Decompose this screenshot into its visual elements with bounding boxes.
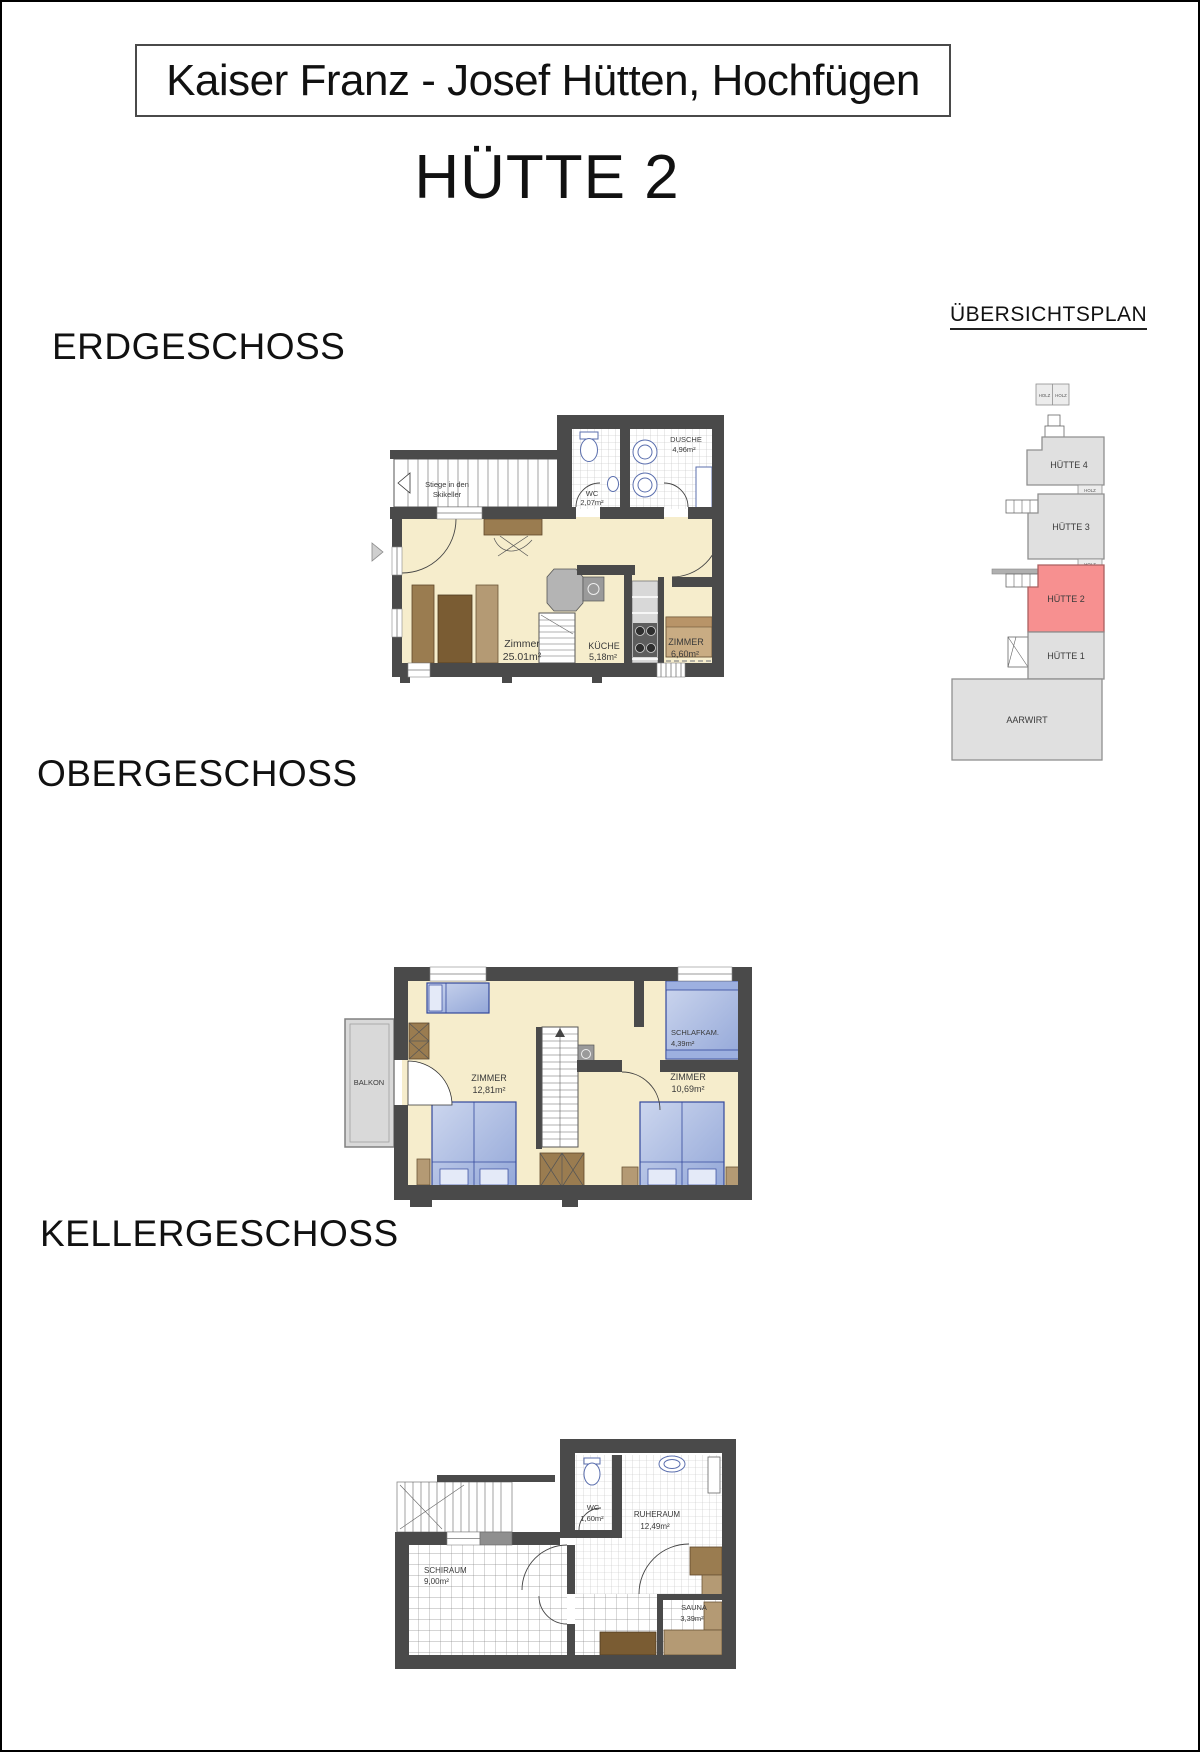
kg-bench [600, 1632, 656, 1655]
kg-toilet-icon [584, 1458, 600, 1485]
label-kg-wc-area: 1,60m² [580, 1514, 604, 1523]
label-dusche-area: 4,96m² [672, 445, 696, 454]
single-bed-topleft [427, 983, 489, 1013]
nightstand [417, 1159, 430, 1185]
kg-shower-icon [708, 1457, 720, 1493]
label-zimmer-area: 25.01m² [503, 651, 542, 663]
label-wc-area: 2,07m² [580, 498, 604, 507]
ruheraum-bench [702, 1575, 722, 1597]
building-aarwirt-label: AARWIRT [1006, 715, 1048, 725]
holz-top-boxes: HOLZ HOLZ [1036, 384, 1069, 405]
label-wc-name: WC [586, 489, 599, 498]
heading-kellergeschoss: KELLERGESCHOSS [40, 1213, 399, 1255]
uebersichtsplan-map: HOLZ HOLZ HÜTTE 4 HOLZ HÜTTE 3 HOLZ HÜTT… [942, 372, 1124, 772]
og-stairs [536, 1027, 578, 1149]
wc-sink-icon [608, 477, 619, 492]
wardrobe-left [409, 1023, 429, 1059]
wardrobe-bottom [540, 1153, 584, 1187]
label-zimmer-name: Zimmer [504, 638, 540, 650]
kg-sink-icon [659, 1456, 685, 1472]
building-huette3-label: HÜTTE 3 [1052, 522, 1090, 532]
building-huette4-label: HÜTTE 4 [1050, 460, 1088, 470]
nightstand [622, 1167, 638, 1187]
label-ruheraum-name: RUHERAUM [634, 1510, 681, 1519]
double-bed-right [640, 1102, 724, 1190]
kg-windows [447, 1532, 512, 1545]
hut-subtitle: HÜTTE 2 [197, 142, 897, 213]
label-sauna-area: 3,39m² [680, 1614, 704, 1623]
label-schiraum-name: SCHIRAUM [424, 1566, 467, 1575]
cellar-stairs [539, 613, 575, 663]
huette2-balcony [1006, 574, 1038, 587]
ruheraum-lounger [690, 1547, 722, 1575]
label-balkon: BALKON [354, 1078, 384, 1087]
heading-uebersichtsplan: ÜBERSICHTSPLAN [950, 303, 1147, 330]
entrance-marker-icon [372, 543, 383, 561]
building-huette1-label: HÜTTE 1 [1047, 651, 1085, 661]
label-schiraum-area: 9,00m² [424, 1577, 449, 1586]
sauna-bench-bottom [664, 1630, 722, 1655]
label-ruheraum-area: 12,49m² [640, 1522, 670, 1531]
bench-right [476, 585, 498, 663]
holz-label: HOLZ [1039, 393, 1051, 398]
toilet-icon [580, 432, 598, 462]
heading-obergeschoss: OBERGESCHOSS [37, 753, 358, 795]
label-zimmer-rechts-area: 10,69m² [671, 1084, 704, 1094]
shower-tray-icon [696, 467, 712, 509]
huette1-entrance [1008, 637, 1028, 667]
label-kueche-area: 5,18m² [589, 652, 617, 662]
label-zimmer-rechts-name: ZIMMER [670, 1072, 706, 1082]
erdgeschoss-floorplan: Stiege in den Skikeller WC 2,07m² DUSCHE… [342, 407, 732, 699]
floorplan-document: Kaiser Franz - Josef Hütten, Hochfügen H… [0, 0, 1200, 1752]
obergeschoss-floorplan: BALKON ZIMMER 12,81m² ZIMMER 10,69m² SCH… [322, 957, 762, 1219]
label-schlafkammer-name: SCHLAFKAM. [671, 1028, 719, 1037]
label-zimmer2-area: 6,60m² [671, 649, 699, 659]
heading-erdgeschoss: ERDGESCHOSS [52, 326, 345, 368]
huette3-balcony [1006, 500, 1038, 513]
ski-cellar-stairs [394, 459, 559, 507]
table-long [438, 595, 472, 663]
label-zimmer2-name: ZIMMER [668, 637, 704, 647]
label-kueche-name: KÜCHE [588, 641, 620, 651]
holz-label: HOLZ [1084, 488, 1096, 493]
label-sauna-name: SAUNA [681, 1603, 707, 1612]
schiraum-floor [409, 1545, 567, 1655]
label-stiege-line2: Skikeller [433, 490, 462, 499]
document-title-box: Kaiser Franz - Josef Hütten, Hochfügen [135, 44, 951, 117]
kellergeschoss-floorplan: WC 1,60m² RUHERAUM 12,49m² SCHIRAUM 9,00… [352, 1432, 744, 1694]
label-dusche-name: DUSCHE [670, 435, 702, 444]
holz-label: HOLZ [1055, 393, 1067, 398]
huette4-chimney [1045, 415, 1064, 437]
kg-corridor-floor [575, 1538, 622, 1597]
document-title: Kaiser Franz - Josef Hütten, Hochfügen [166, 56, 920, 106]
label-schlafkammer-area: 4,39m² [671, 1039, 695, 1048]
bench-left [412, 585, 434, 663]
huette2-terrace-bar [992, 569, 1038, 574]
table [484, 519, 542, 535]
kitchen-counter [632, 581, 658, 663]
tiled-stove [547, 569, 583, 611]
label-kg-wc-name: WC [587, 1503, 600, 1512]
kg-stairs [397, 1482, 512, 1532]
double-bed-left [432, 1102, 516, 1190]
building-huette2-label: HÜTTE 2 [1047, 594, 1085, 604]
label-stiege-line1: Stiege in den [425, 480, 469, 489]
oven-box [583, 577, 604, 601]
label-zimmer-links-area: 12,81m² [472, 1085, 505, 1095]
label-zimmer-links-name: ZIMMER [471, 1073, 507, 1083]
